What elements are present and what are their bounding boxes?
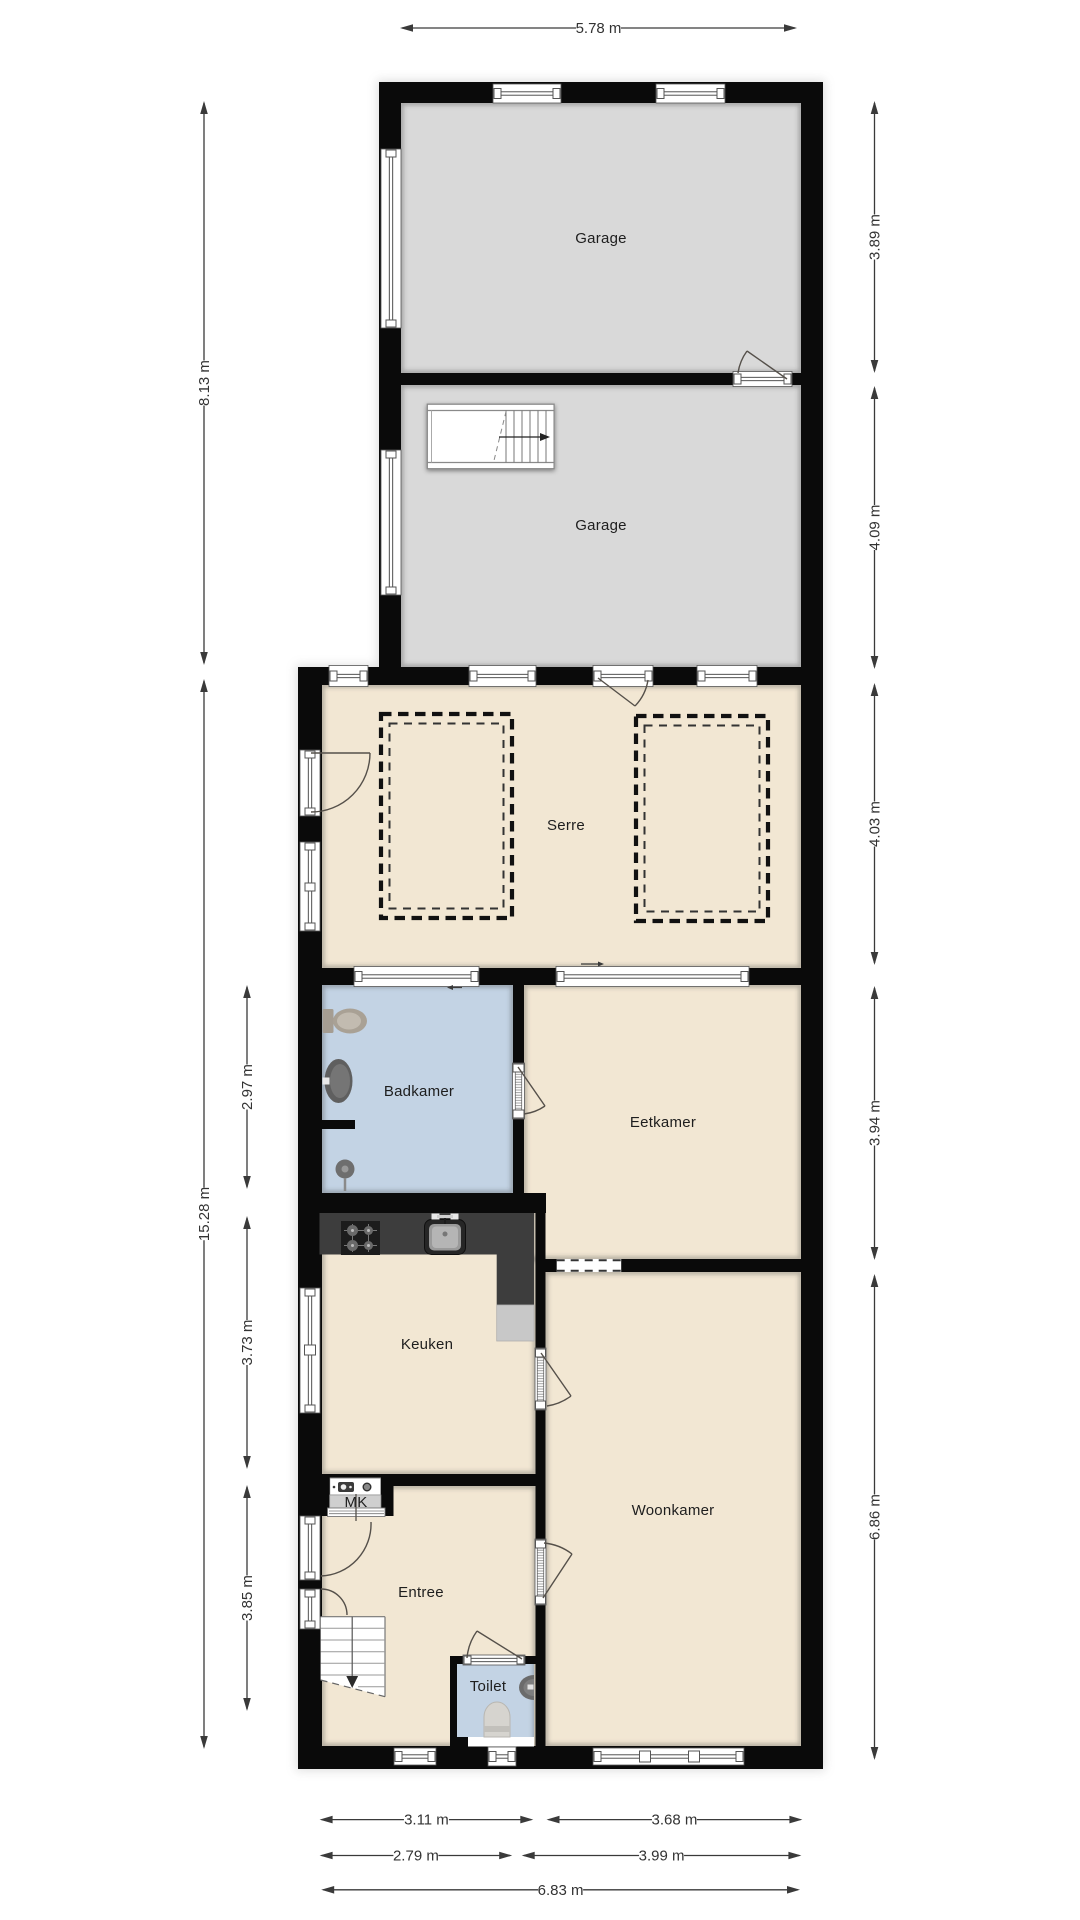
- svg-text:Serre: Serre: [547, 817, 585, 834]
- svg-text:2.97 m: 2.97 m: [239, 1064, 256, 1110]
- svg-text:4.03 m: 4.03 m: [867, 801, 884, 847]
- svg-text:Toilet: Toilet: [470, 1678, 507, 1695]
- svg-text:Entree: Entree: [398, 1584, 444, 1601]
- svg-text:6.86 m: 6.86 m: [867, 1494, 884, 1540]
- svg-text:Garage: Garage: [575, 517, 627, 534]
- svg-text:3.11 m: 3.11 m: [404, 1812, 449, 1829]
- svg-text:15.28 m: 15.28 m: [196, 1187, 213, 1241]
- svg-text:4.09 m: 4.09 m: [867, 505, 884, 551]
- svg-text:Woonkamer: Woonkamer: [632, 1502, 715, 1519]
- svg-text:Eetkamer: Eetkamer: [630, 1114, 696, 1131]
- svg-text:Keuken: Keuken: [401, 1336, 453, 1353]
- svg-text:8.13 m: 8.13 m: [196, 360, 213, 406]
- svg-text:3.89 m: 3.89 m: [867, 214, 884, 260]
- svg-text:3.68 m: 3.68 m: [652, 1812, 698, 1829]
- svg-text:3.94 m: 3.94 m: [867, 1100, 884, 1146]
- svg-text:Badkamer: Badkamer: [384, 1083, 454, 1100]
- svg-text:2.79 m: 2.79 m: [393, 1848, 439, 1865]
- svg-text:5.78 m: 5.78 m: [576, 20, 622, 37]
- svg-text:3.73 m: 3.73 m: [239, 1320, 256, 1366]
- svg-text:3.99 m: 3.99 m: [639, 1848, 685, 1865]
- svg-text:Garage: Garage: [575, 230, 627, 247]
- svg-text:6.83 m: 6.83 m: [538, 1882, 584, 1899]
- svg-text:3.85 m: 3.85 m: [239, 1575, 256, 1621]
- svg-text:MK: MK: [345, 1494, 368, 1511]
